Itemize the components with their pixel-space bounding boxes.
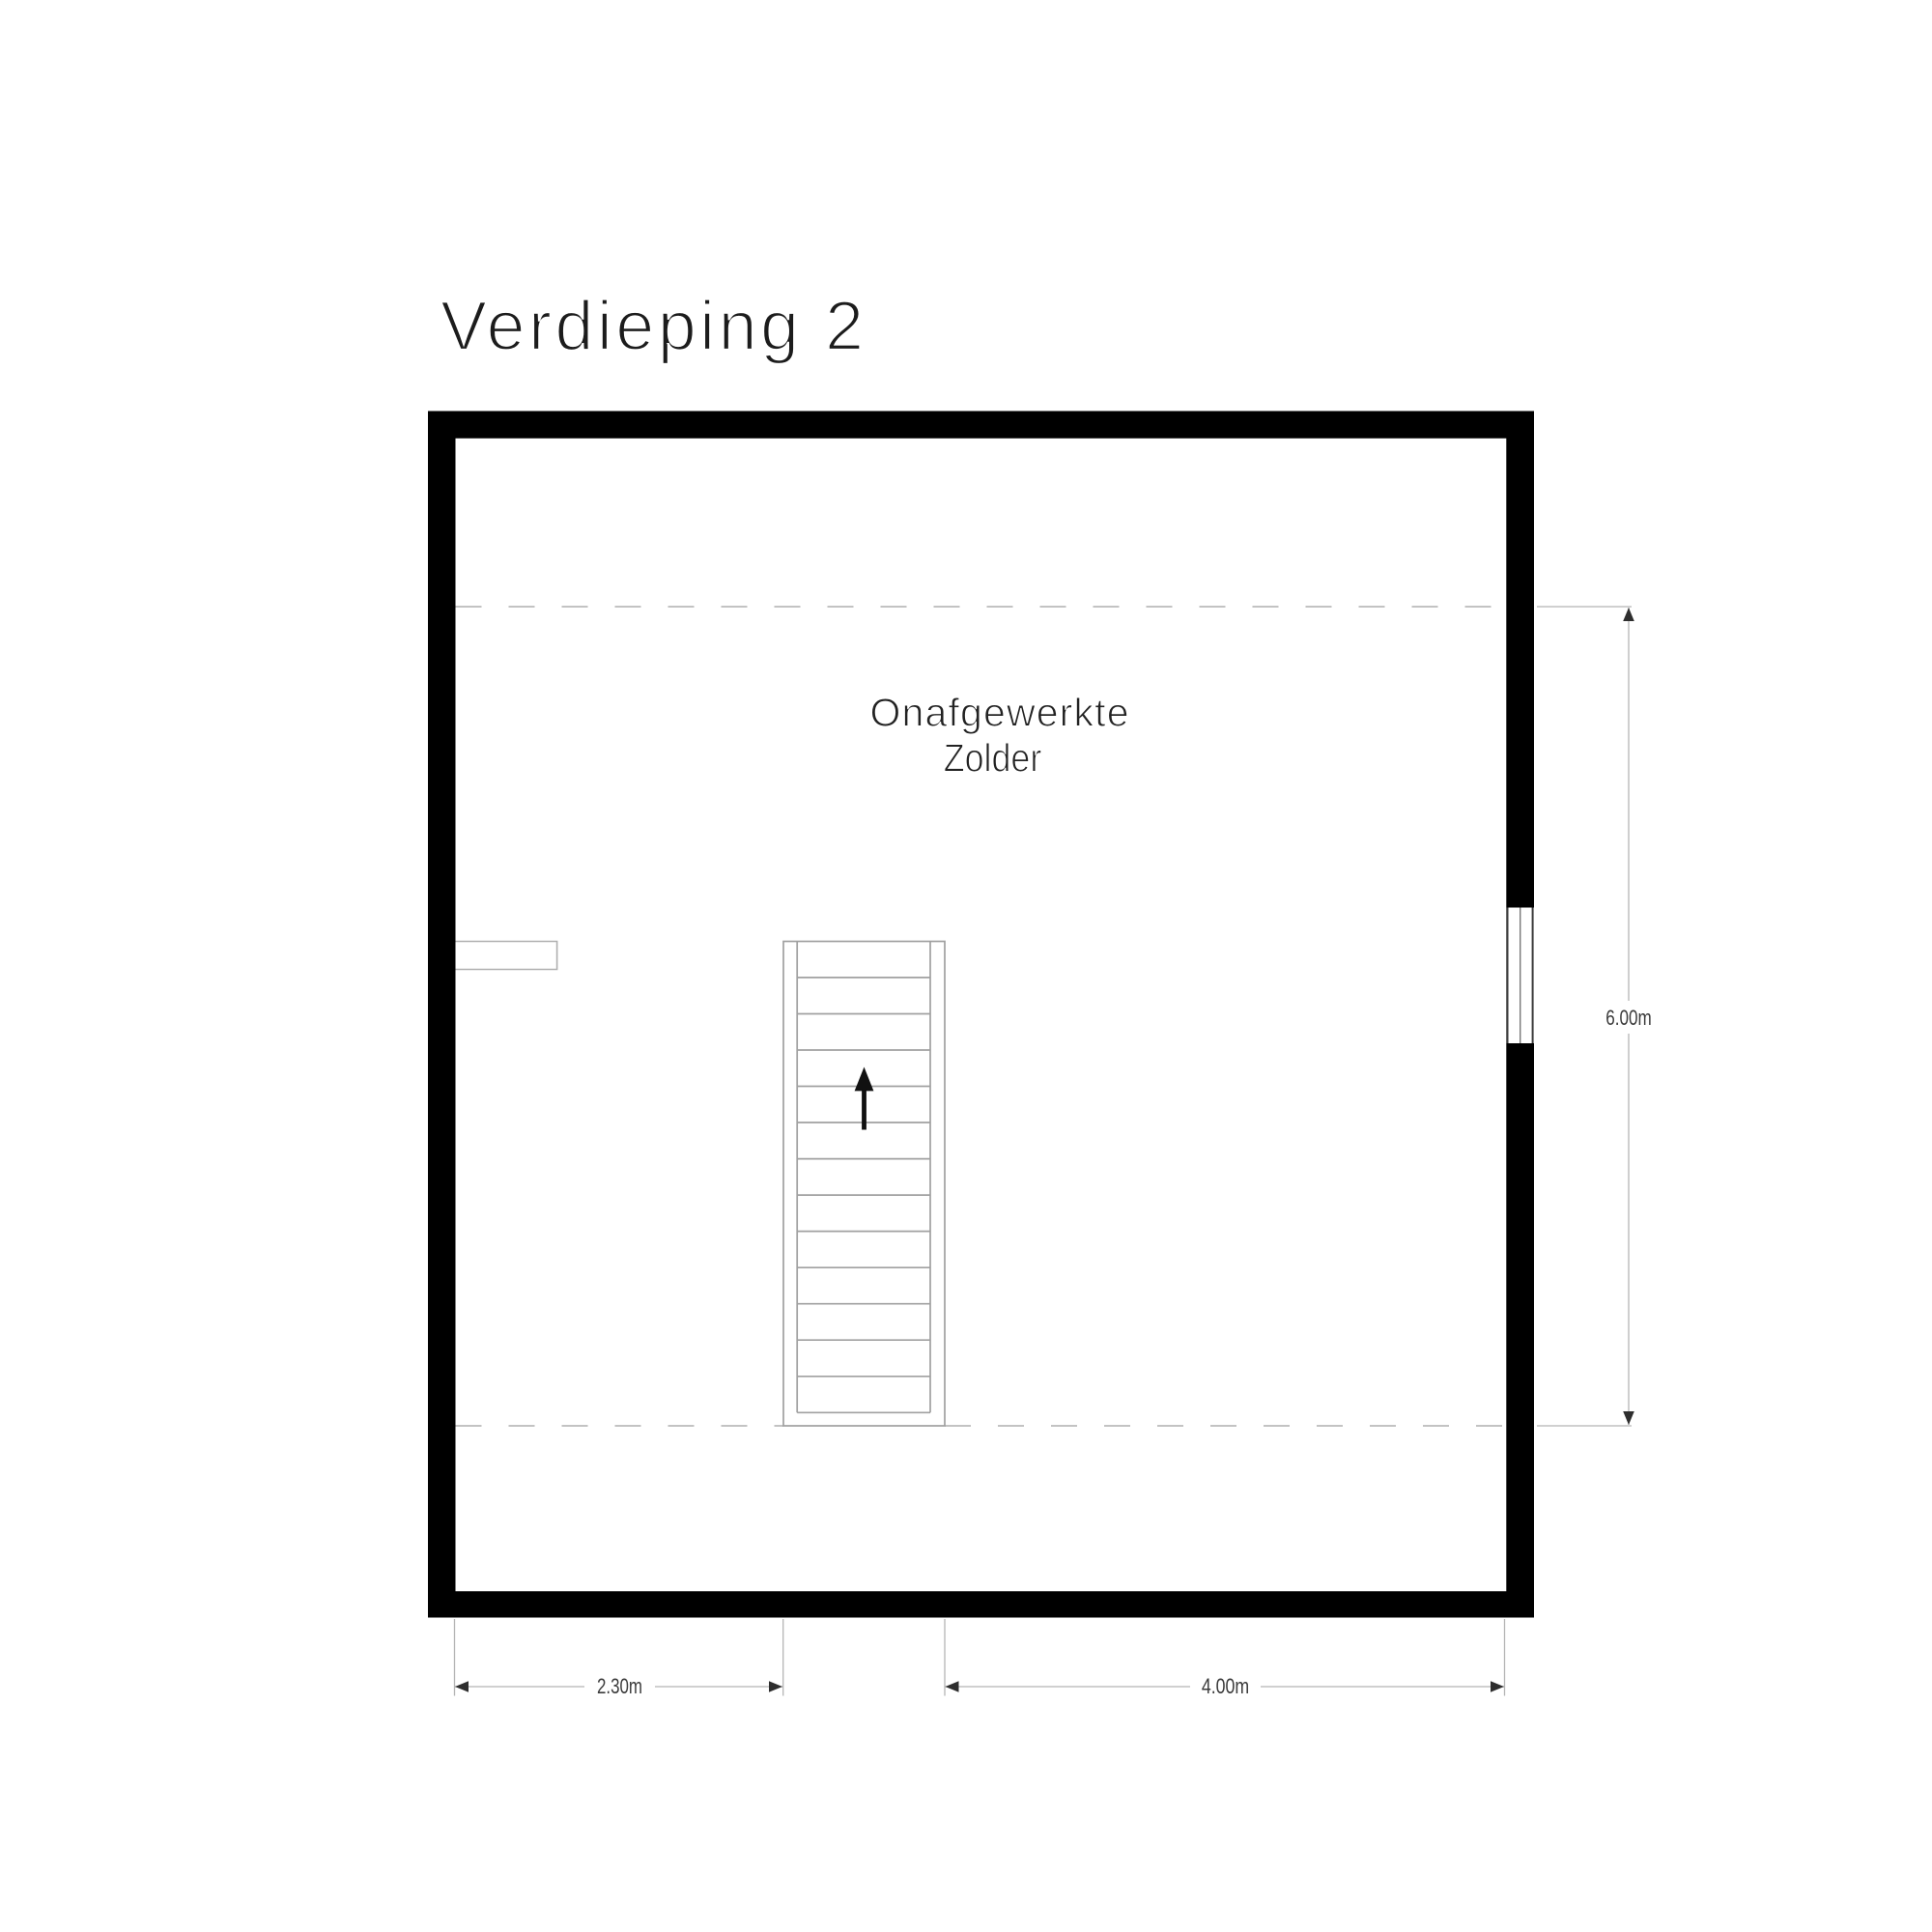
svg-text:4.00m: 4.00m bbox=[1202, 1674, 1249, 1698]
svg-text:Onafgewerkte: Onafgewerkte bbox=[870, 691, 1129, 735]
svg-text:Zolder: Zolder bbox=[944, 736, 1042, 781]
svg-text:2.30m: 2.30m bbox=[597, 1674, 642, 1698]
svg-text:6.00m: 6.00m bbox=[1605, 1006, 1652, 1030]
